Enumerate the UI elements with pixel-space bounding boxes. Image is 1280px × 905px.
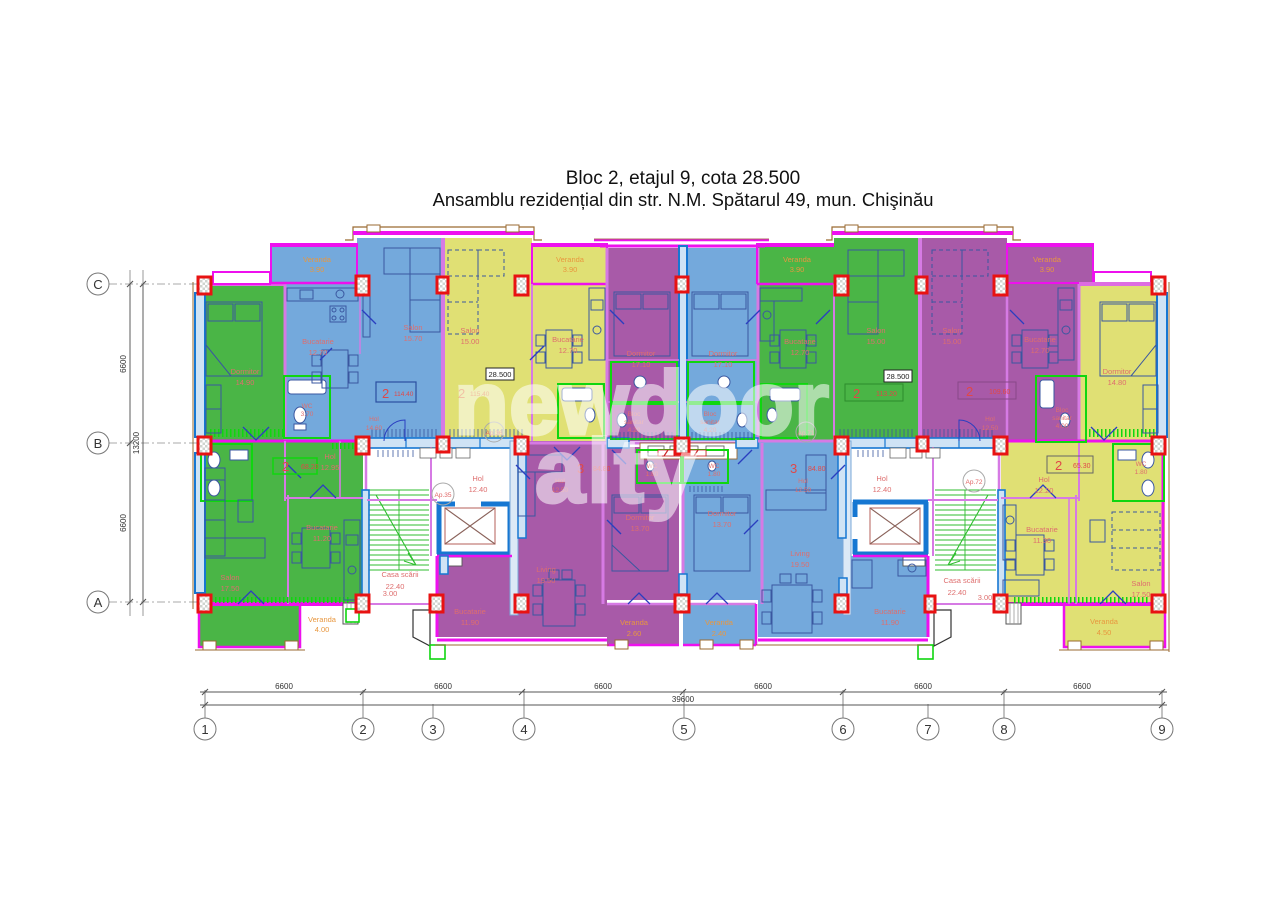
svg-text:2: 2 — [282, 459, 289, 474]
svg-text:109.60: 109.60 — [989, 389, 1011, 396]
svg-text:Veranda: Veranda — [1090, 617, 1119, 626]
svg-text:Bucatarie: Bucatarie — [874, 607, 906, 616]
svg-text:Salon: Salon — [942, 326, 961, 335]
svg-text:Hol: Hol — [876, 474, 888, 483]
svg-text:3.90: 3.90 — [790, 265, 805, 274]
svg-text:6600: 6600 — [119, 355, 128, 373]
svg-text:6600: 6600 — [434, 682, 452, 691]
svg-text:12.70: 12.70 — [309, 348, 328, 357]
svg-text:Hol: Hol — [798, 478, 808, 485]
svg-text:9: 9 — [1158, 722, 1165, 737]
svg-text:22.40: 22.40 — [948, 588, 967, 597]
svg-text:6600: 6600 — [1073, 682, 1091, 691]
svg-text:1.80: 1.80 — [1135, 469, 1148, 476]
svg-text:Dormitor: Dormitor — [708, 509, 737, 518]
svg-text:2: 2 — [966, 384, 973, 399]
svg-text:113.20: 113.20 — [876, 391, 897, 398]
svg-text:12.95: 12.95 — [321, 463, 340, 472]
svg-text:Dormitor: Dormitor — [231, 367, 260, 376]
svg-text:WC: WC — [1136, 461, 1147, 468]
svg-text:4.00: 4.00 — [315, 625, 330, 634]
svg-text:WC: WC — [302, 403, 313, 410]
svg-text:12.40: 12.40 — [469, 485, 488, 494]
svg-text:1.80: 1.80 — [708, 471, 721, 478]
svg-text:3.00: 3.00 — [383, 589, 398, 598]
svg-text:Salon: Salon — [220, 573, 239, 582]
svg-text:2.60: 2.60 — [627, 629, 642, 638]
svg-text:3.90: 3.90 — [310, 265, 325, 274]
svg-text:Hol: Hol — [369, 416, 379, 423]
svg-text:WC: WC — [709, 463, 720, 470]
svg-text:68.20: 68.20 — [301, 464, 319, 471]
svg-text:6600: 6600 — [119, 514, 128, 532]
svg-text:11.90: 11.90 — [881, 618, 899, 627]
svg-text:6600: 6600 — [914, 682, 932, 691]
svg-text:12.50: 12.50 — [795, 487, 812, 494]
svg-text:7: 7 — [924, 722, 931, 737]
svg-text:Hol: Hol — [1038, 475, 1050, 484]
svg-text:Veranda: Veranda — [308, 615, 337, 624]
svg-text:19.50: 19.50 — [537, 576, 556, 585]
svg-text:Casa scării: Casa scării — [381, 570, 418, 579]
svg-text:6600: 6600 — [754, 682, 772, 691]
svg-text:4: 4 — [520, 722, 527, 737]
svg-text:13200: 13200 — [132, 431, 141, 454]
svg-text:4.50: 4.50 — [1097, 628, 1112, 637]
svg-text:14.60: 14.60 — [366, 425, 383, 432]
svg-text:39600: 39600 — [672, 695, 695, 704]
svg-text:15.00: 15.00 — [867, 337, 886, 346]
svg-text:Hol: Hol — [324, 452, 336, 461]
svg-text:2: 2 — [853, 386, 860, 401]
svg-text:13.70: 13.70 — [713, 520, 732, 529]
svg-text:Ap.72: Ap.72 — [966, 479, 983, 486]
svg-text:Bucatarie: Bucatarie — [552, 335, 584, 344]
svg-text:Hol: Hol — [472, 474, 484, 483]
svg-text:14.80: 14.80 — [1108, 378, 1127, 387]
svg-text:12.50: 12.50 — [982, 425, 999, 432]
svg-text:114.40: 114.40 — [394, 391, 414, 398]
svg-text:8: 8 — [1000, 722, 1007, 737]
svg-text:alty: alty — [535, 422, 698, 522]
svg-text:12.40: 12.40 — [873, 485, 892, 494]
svg-text:Veranda: Veranda — [705, 618, 734, 627]
svg-text:17.50: 17.50 — [1132, 590, 1151, 599]
svg-text:3: 3 — [429, 722, 436, 737]
svg-text:Veranda: Veranda — [556, 255, 585, 264]
svg-text:Dormitor: Dormitor — [1103, 367, 1132, 376]
svg-text:65.30: 65.30 — [1073, 463, 1091, 470]
svg-text:B: B — [94, 436, 103, 451]
svg-text:Bucatarie: Bucatarie — [1026, 525, 1058, 534]
svg-text:Bucatarie: Bucatarie — [454, 607, 486, 616]
svg-text:3.90: 3.90 — [563, 265, 578, 274]
svg-text:Ap.35: Ap.35 — [435, 492, 452, 499]
svg-text:Salon: Salon — [460, 326, 479, 335]
svg-text:A: A — [94, 595, 103, 610]
svg-text:4.00: 4.00 — [1056, 423, 1069, 430]
svg-text:3.70: 3.70 — [301, 411, 314, 418]
svg-text:Bucatarie: Bucatarie — [784, 337, 816, 346]
svg-text:12.20: 12.20 — [1035, 486, 1054, 495]
svg-text:Bucatarie: Bucatarie — [306, 523, 338, 532]
svg-text:13.70: 13.70 — [631, 524, 650, 533]
svg-text:Living: Living — [790, 549, 810, 558]
svg-text:11.20: 11.20 — [313, 534, 331, 543]
svg-text:sanitar: sanitar — [1052, 415, 1072, 422]
svg-text:Bloc 2, etajul 9, cota 28.500: Bloc 2, etajul 9, cota 28.500 — [566, 168, 801, 189]
svg-text:Salon: Salon — [866, 326, 885, 335]
svg-text:17.50: 17.50 — [221, 584, 240, 593]
svg-text:5: 5 — [680, 722, 687, 737]
svg-text:14.90: 14.90 — [236, 378, 255, 387]
svg-text:C: C — [93, 277, 102, 292]
svg-text:1: 1 — [201, 722, 208, 737]
svg-text:6600: 6600 — [594, 682, 612, 691]
svg-text:15.70: 15.70 — [404, 334, 423, 343]
svg-text:Hol: Hol — [985, 416, 995, 423]
svg-text:Bucatarie: Bucatarie — [302, 337, 334, 346]
svg-text:2: 2 — [382, 386, 389, 401]
svg-text:Ansamblu rezidențial din str.: Ansamblu rezidențial din str. N.M. Spăta… — [433, 189, 934, 210]
svg-text:Veranda: Veranda — [783, 255, 812, 264]
svg-text:2: 2 — [359, 722, 366, 737]
svg-text:Casa scării: Casa scării — [943, 576, 980, 585]
svg-text:12.70: 12.70 — [1031, 346, 1050, 355]
svg-text:3.90: 3.90 — [1040, 265, 1055, 274]
svg-text:Living: Living — [536, 565, 556, 574]
svg-text:2: 2 — [1055, 458, 1062, 473]
svg-text:2.40: 2.40 — [712, 629, 727, 638]
svg-text:Salon: Salon — [403, 323, 422, 332]
svg-text:11.90: 11.90 — [461, 618, 479, 627]
svg-text:15.00: 15.00 — [461, 337, 480, 346]
svg-text:3.00: 3.00 — [978, 593, 993, 602]
svg-text:11.30: 11.30 — [1033, 536, 1051, 545]
svg-text:6: 6 — [839, 722, 846, 737]
svg-text:6600: 6600 — [275, 682, 293, 691]
svg-text:Bucatarie: Bucatarie — [1024, 335, 1056, 344]
svg-text:Salon: Salon — [1131, 579, 1150, 588]
svg-text:84.80: 84.80 — [808, 466, 826, 473]
svg-text:28.500: 28.500 — [887, 372, 910, 381]
svg-text:15.00: 15.00 — [943, 337, 962, 346]
svg-text:Veranda: Veranda — [303, 255, 332, 264]
svg-text:3: 3 — [790, 461, 797, 476]
svg-text:Bloc: Bloc — [1056, 407, 1069, 414]
svg-text:Veranda: Veranda — [620, 618, 649, 627]
svg-text:Veranda: Veranda — [1033, 255, 1062, 264]
svg-text:19.50: 19.50 — [791, 560, 810, 569]
